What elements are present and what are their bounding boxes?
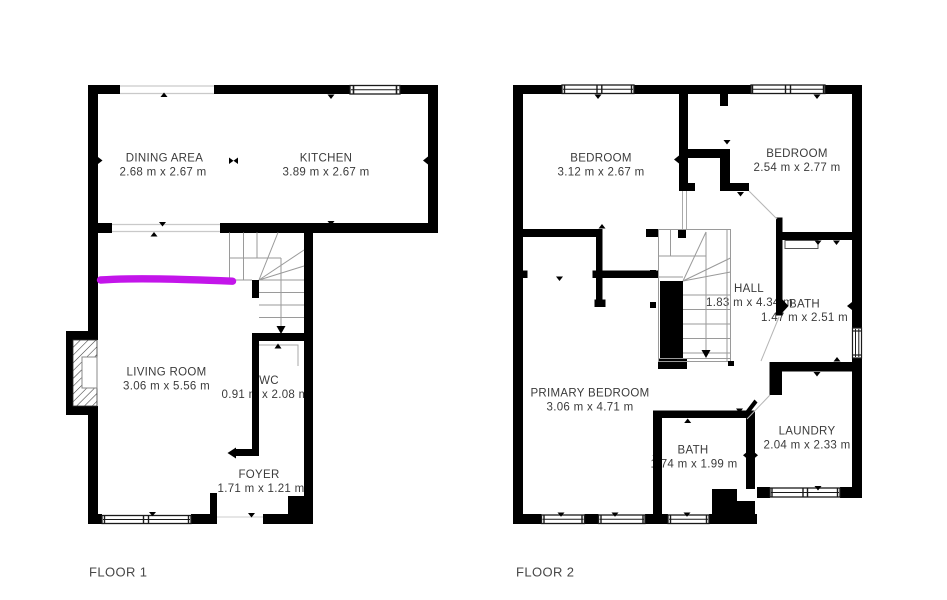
svg-text:3.12 m x 2.67 m: 3.12 m x 2.67 m: [558, 167, 645, 179]
svg-text:0.91 m x 2.08 m: 0.91 m x 2.08 m: [222, 389, 309, 401]
svg-text:DINING AREA: DINING AREA: [126, 153, 203, 165]
svg-text:HALL: HALL: [734, 283, 764, 295]
svg-text:FLOOR 2: FLOOR 2: [516, 565, 574, 580]
svg-text:1.71 m x 1.21 m: 1.71 m x 1.21 m: [218, 483, 305, 495]
svg-text:3.06 m x 5.56 m: 3.06 m x 5.56 m: [123, 381, 210, 393]
svg-text:WC: WC: [259, 375, 279, 387]
svg-text:FOYER: FOYER: [238, 469, 279, 481]
svg-text:3.89 m x 2.67 m: 3.89 m x 2.67 m: [283, 167, 370, 179]
svg-text:BATH: BATH: [789, 299, 820, 311]
svg-text:2.68 m x 2.67 m: 2.68 m x 2.67 m: [120, 167, 207, 179]
svg-text:BEDROOM: BEDROOM: [570, 153, 632, 165]
svg-text:2.54 m x 2.77 m: 2.54 m x 2.77 m: [754, 162, 841, 174]
svg-text:KITCHEN: KITCHEN: [300, 153, 353, 165]
svg-text:1.47 m x 2.51 m: 1.47 m x 2.51 m: [761, 312, 848, 324]
svg-text:BATH: BATH: [677, 445, 708, 457]
svg-text:LIVING ROOM: LIVING ROOM: [127, 367, 207, 379]
svg-text:LAUNDRY: LAUNDRY: [779, 426, 836, 438]
svg-text:1.74 m x 1.99 m: 1.74 m x 1.99 m: [651, 459, 738, 471]
svg-text:2.04 m x 2.33 m: 2.04 m x 2.33 m: [764, 440, 851, 452]
svg-text:3.06 m x 4.71 m: 3.06 m x 4.71 m: [547, 402, 634, 414]
svg-text:FLOOR 1: FLOOR 1: [89, 565, 147, 580]
svg-text:BEDROOM: BEDROOM: [766, 148, 828, 160]
svg-text:PRIMARY BEDROOM: PRIMARY BEDROOM: [530, 388, 649, 400]
